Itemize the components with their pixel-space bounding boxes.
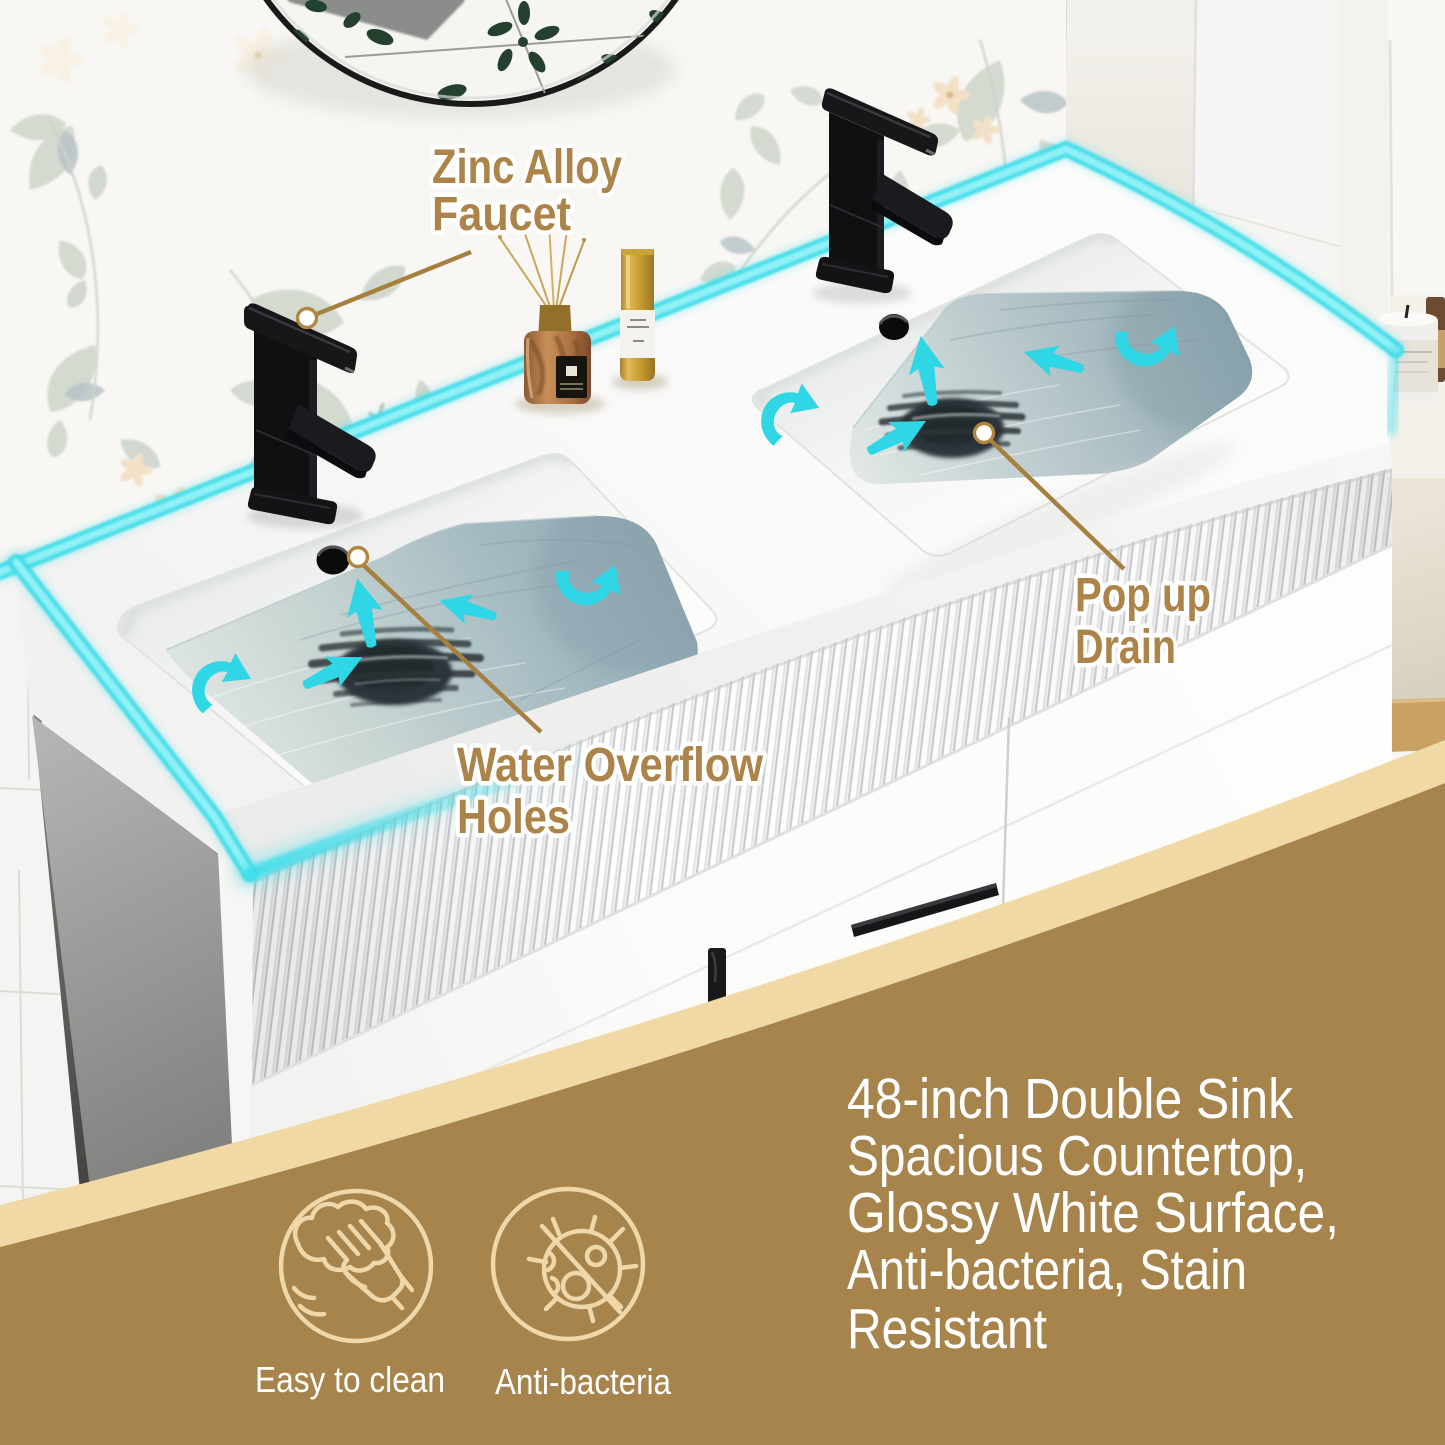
svg-text:Anti-bacteria: Anti-bacteria (495, 1361, 672, 1402)
svg-text:Pop up: Pop up (1075, 569, 1211, 622)
svg-text:Easy to clean: Easy to clean (255, 1359, 445, 1400)
svg-text:Water Overflow: Water Overflow (457, 739, 764, 792)
svg-text:Spacious Countertop,: Spacious Countertop, (847, 1124, 1307, 1188)
svg-text:Anti-bacteria, Stain: Anti-bacteria, Stain (847, 1238, 1247, 1302)
svg-text:Faucet: Faucet (432, 188, 571, 241)
svg-text:Zinc Alloy: Zinc Alloy (432, 141, 622, 194)
svg-text:Holes: Holes (457, 791, 570, 844)
svg-text:Drain: Drain (1075, 621, 1176, 674)
svg-text:Resistant: Resistant (847, 1297, 1047, 1361)
svg-text:48-inch Double Sink: 48-inch Double Sink (847, 1067, 1293, 1131)
svg-text:Glossy White Surface,: Glossy White Surface, (847, 1181, 1339, 1245)
